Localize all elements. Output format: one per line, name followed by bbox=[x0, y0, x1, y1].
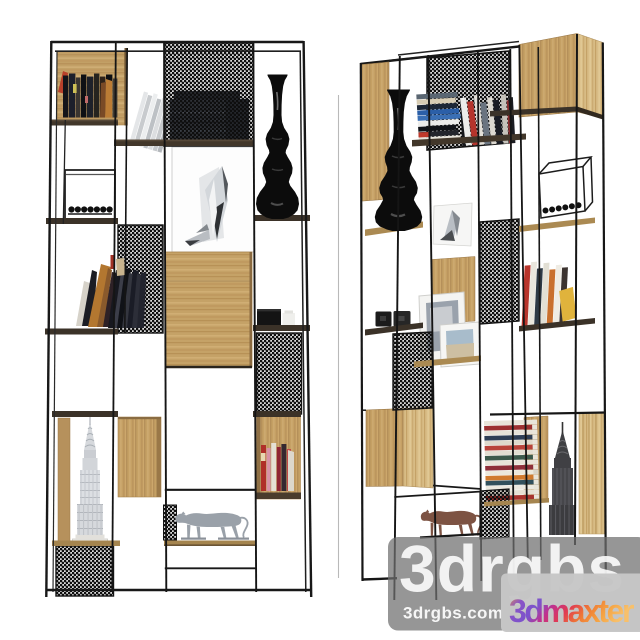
svg-text:3dmaxter: 3dmaxter bbox=[509, 593, 634, 629]
svg-text:3drgbs.com: 3drgbs.com bbox=[403, 604, 503, 623]
